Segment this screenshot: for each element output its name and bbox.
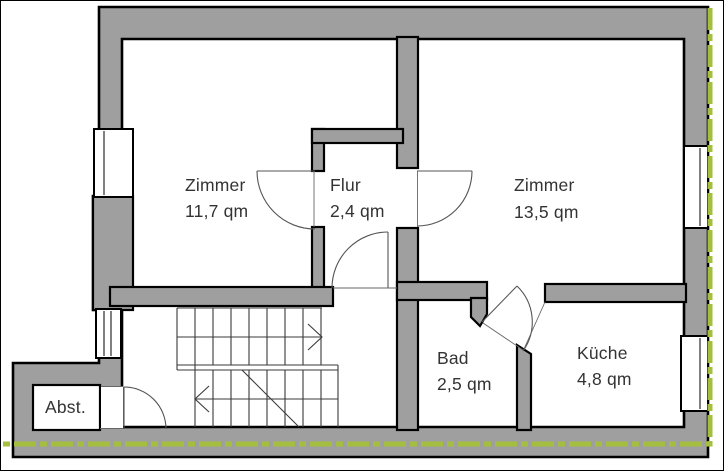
wall-flur-zimmer2-upper (397, 37, 418, 168)
wall-flur-top (312, 129, 403, 143)
floor-plan-drawing: Zimmer 11,7 qm Flur 2,4 qm Zimmer 13,5 q… (0, 0, 724, 471)
wall-kueche-top (545, 284, 686, 302)
window-kueche (681, 336, 708, 411)
window-zimmer1 (94, 129, 133, 197)
window-stairhall (96, 309, 121, 358)
wall-bad-kueche (517, 345, 531, 430)
room-label-kueche-name: Küche (577, 343, 628, 363)
room-label-zimmer1-area: 11,7 qm (185, 201, 248, 221)
floor-plan-canvas: Zimmer 11,7 qm Flur 2,4 qm Zimmer 13,5 q… (0, 0, 724, 471)
room-label-zimmer2-area: 13,5 qm (514, 202, 579, 222)
room-label-flur-name: Flur (330, 175, 361, 195)
window-zimmer2 (684, 146, 708, 228)
wall-center-lower (397, 228, 418, 430)
room-label-zimmer2-name: Zimmer (514, 175, 575, 195)
wall-zimmer1-bottom (110, 287, 333, 306)
room-label-bad-area: 2,5 qm (437, 374, 492, 394)
room-label-zimmer1-name: Zimmer (185, 175, 246, 195)
wall-flur-left-lower (312, 227, 324, 289)
abstellraum-doorway (101, 387, 123, 428)
room-label-kueche-area: 4,8 qm (577, 369, 632, 389)
room-label-flur-area: 2,4 qm (330, 201, 385, 221)
room-label-abstellraum-name: Abst. (45, 397, 86, 417)
room-label-bad-name: Bad (437, 348, 469, 368)
